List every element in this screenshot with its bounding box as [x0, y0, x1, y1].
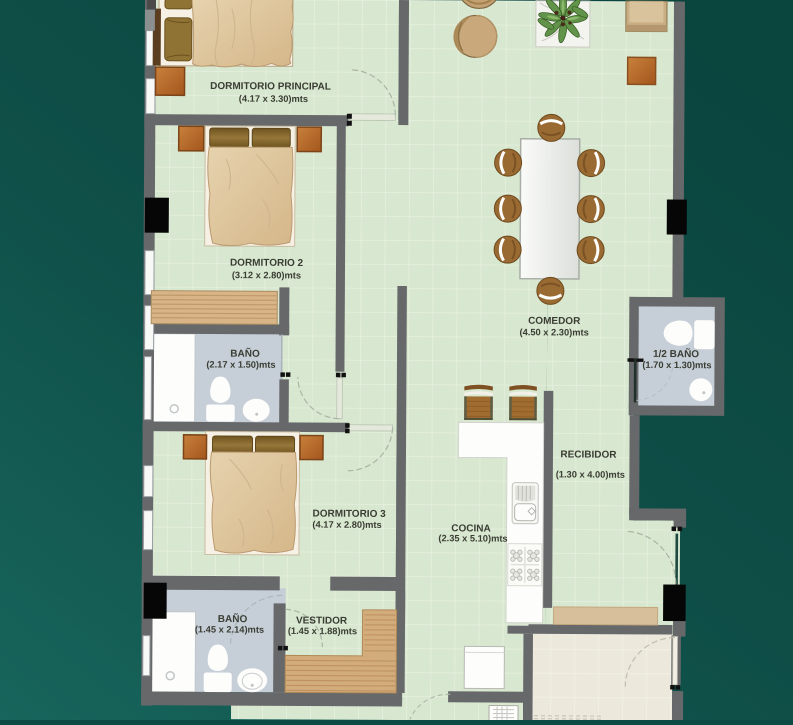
svg-text:1/2 BAÑO: 1/2 BAÑO	[653, 347, 699, 360]
svg-text:DORMITORIO PRINCIPAL: DORMITORIO PRINCIPAL	[210, 81, 331, 93]
svg-text:DORMITORIO 2: DORMITORIO 2	[230, 258, 304, 269]
svg-text:(2.35 x 5.10)mts: (2.35 x 5.10)mts	[438, 533, 507, 543]
svg-text:(4.50 x 2.30)mts: (4.50 x 2.30)mts	[519, 327, 588, 337]
svg-text:(1.70 x 1.30)mts: (1.70 x 1.30)mts	[642, 360, 711, 370]
svg-text:(1.30 x 4.00)mts: (1.30 x 4.00)mts	[556, 469, 625, 479]
svg-text:BAÑO: BAÑO	[218, 612, 248, 625]
svg-text:(2.17 x 1.50)mts: (2.17 x 1.50)mts	[206, 359, 275, 369]
svg-text:(1.45 x 2.14)mts: (1.45 x 2.14)mts	[195, 624, 264, 634]
svg-text:(3.12 x 2.80)mts: (3.12 x 2.80)mts	[232, 270, 301, 280]
svg-text:(4.17 x 2.80)mts: (4.17 x 2.80)mts	[312, 520, 381, 530]
svg-text:(4.17 x 3.30)mts: (4.17 x 3.30)mts	[239, 94, 308, 104]
svg-text:COMEDOR: COMEDOR	[528, 316, 581, 327]
svg-text:RECIBIDOR: RECIBIDOR	[560, 449, 617, 460]
svg-text:(1.45 x 1.88)mts: (1.45 x 1.88)mts	[288, 626, 357, 636]
svg-text:BAÑO: BAÑO	[230, 347, 260, 360]
svg-text:DORMITORIO 3: DORMITORIO 3	[313, 509, 387, 520]
